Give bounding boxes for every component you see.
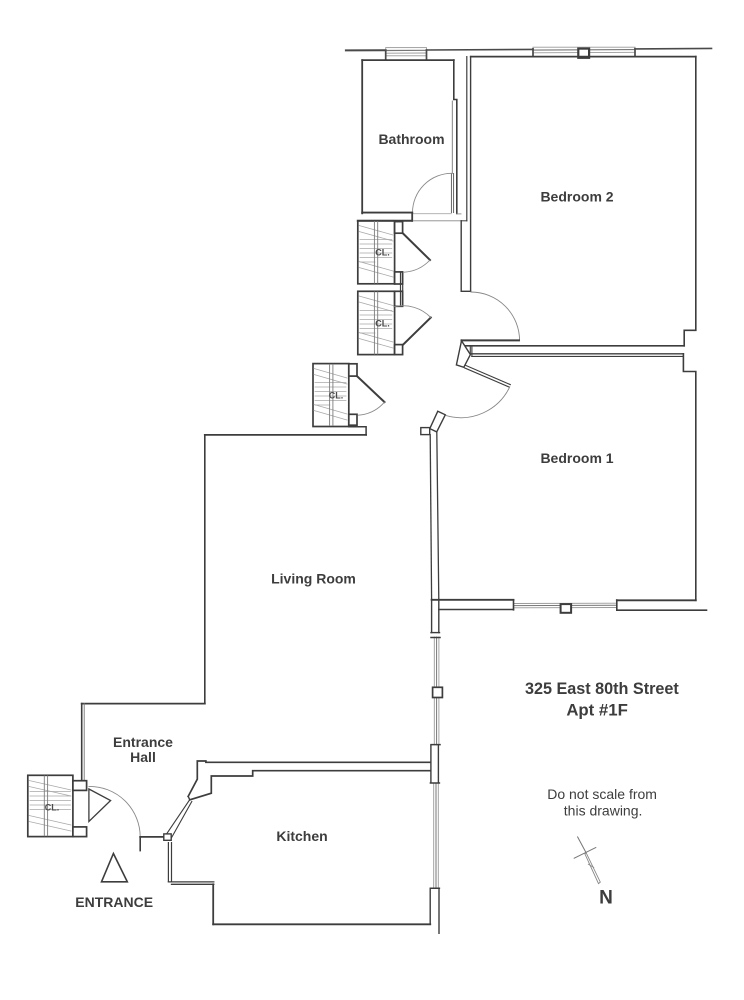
svg-text:Do not scale from: Do not scale from <box>547 786 657 802</box>
svg-text:325 East 80th Street: 325 East 80th Street <box>525 680 679 698</box>
svg-text:Entrance: Entrance <box>113 734 173 750</box>
svg-text:Apt #1F: Apt #1F <box>566 701 628 720</box>
svg-text:CL.: CL. <box>329 391 344 401</box>
svg-text:CL.: CL. <box>45 803 60 813</box>
svg-text:this drawing.: this drawing. <box>564 803 643 819</box>
svg-text:ENTRANCE: ENTRANCE <box>75 894 153 910</box>
svg-text:CL.: CL. <box>375 248 390 258</box>
svg-text:Bedroom 2: Bedroom 2 <box>540 189 613 205</box>
svg-text:Bathroom: Bathroom <box>378 131 444 147</box>
svg-text:Living Room: Living Room <box>271 571 356 587</box>
svg-text:CL.: CL. <box>375 319 390 329</box>
svg-text:Hall: Hall <box>130 749 156 765</box>
svg-text:Bedroom 1: Bedroom 1 <box>540 450 613 466</box>
svg-text:Kitchen: Kitchen <box>276 828 327 844</box>
svg-text:N: N <box>599 888 613 909</box>
